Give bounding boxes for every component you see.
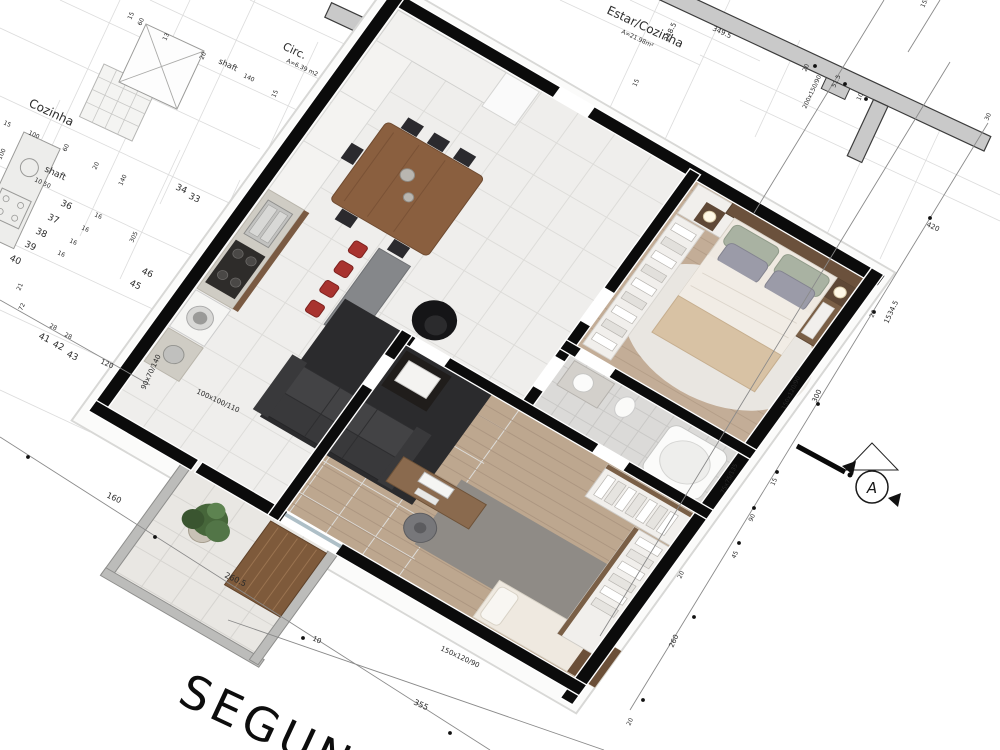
dim-label: 43 [65, 350, 80, 364]
dim-label: 260 [668, 633, 681, 649]
dim-label: 20 [625, 717, 635, 727]
section-letter: A [866, 479, 877, 497]
dim-label: 160 [105, 491, 123, 506]
dim-label: 16 [93, 211, 103, 221]
dim-label: 20 [91, 161, 101, 171]
dim-label: 15 [126, 11, 136, 21]
grid-line [120, 150, 180, 279]
dim-label: 36 [59, 199, 74, 213]
dim-label: 420 [925, 221, 941, 234]
dim-line [754, 0, 884, 213]
dim-label: 37 [46, 213, 61, 227]
tick-dot [737, 541, 741, 545]
dim-label: 33 [187, 192, 202, 206]
tick-dot [153, 535, 157, 539]
dim-label: 40 [8, 254, 23, 268]
tick-dot [692, 615, 696, 619]
dim-label: 16 [68, 237, 78, 247]
dim-label: 30 [983, 112, 993, 122]
tick-dot [928, 216, 932, 220]
section-marker: A [797, 443, 901, 507]
tick-dot [775, 470, 779, 474]
tick-dot [301, 636, 305, 640]
dim-label: shaft [217, 57, 239, 74]
dim-label: 1534.5 [883, 299, 901, 325]
dim-label: 28 [63, 331, 73, 341]
dim-label: 140 [117, 173, 128, 187]
dim-label: 28 [48, 322, 58, 332]
dim-label: 45 [128, 279, 143, 293]
architectural-rendering: A SEGUN CozinhaCirc.A=6.39 m2Estar/Cozin… [0, 0, 1000, 750]
grid-line [880, 130, 940, 259]
sheet-title: SEGUN [171, 663, 363, 750]
tick-dot [448, 731, 452, 735]
tick-dot [864, 97, 868, 101]
tick-dot [752, 506, 756, 510]
dim-label: 45 [730, 550, 740, 560]
dim-label: 34 [174, 183, 189, 197]
dim-label: 140 [242, 72, 256, 83]
dim-label: 38 [34, 227, 49, 241]
dim-label: 305 [128, 230, 139, 244]
dim-label: 39 [23, 240, 38, 254]
dim-label: 42 [51, 340, 66, 354]
dim-label: 100 [0, 147, 8, 161]
dim-label: 15 [2, 119, 12, 129]
dim-label: 15 [270, 89, 280, 99]
dim-label: 15 [631, 78, 641, 88]
floorplan-canvas: A SEGUN CozinhaCirc.A=6.39 m2Estar/Cozin… [0, 0, 1000, 750]
dim-label: Cozinha [27, 96, 76, 129]
dim-label: 16 [56, 249, 66, 259]
dim-label: 10 [311, 635, 322, 646]
dim-label: 72 [17, 302, 27, 312]
section-line [797, 446, 845, 472]
dim-label: 41 [37, 332, 52, 346]
tick-dot [813, 64, 817, 68]
tick-dot [26, 455, 30, 459]
dim-label: 60 [61, 143, 71, 153]
dim-label: 46 [140, 267, 155, 281]
dim-label: Circ. [281, 40, 309, 62]
tick-dot [641, 698, 645, 702]
dim-label: 20 [868, 309, 878, 319]
tick-dot [843, 82, 847, 86]
dim-label: 21 [15, 282, 25, 292]
dim-label: 60 [136, 17, 146, 27]
grid-line [0, 390, 90, 432]
dim-label: 150x120/90 [919, 0, 941, 9]
